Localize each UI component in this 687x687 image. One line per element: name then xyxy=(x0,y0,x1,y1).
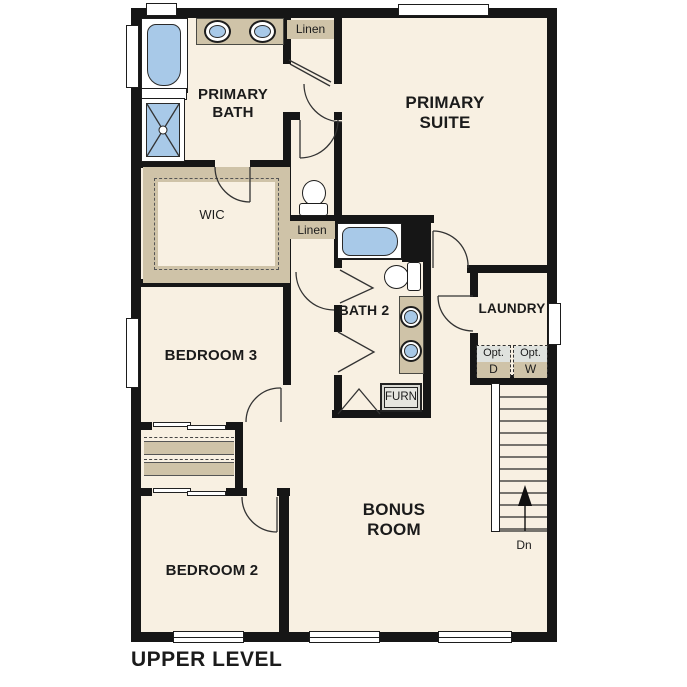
closet-slider-door xyxy=(187,491,226,496)
floor-plan: Linen Linen FURN Opt. D Opt. W PRIMA xyxy=(0,0,687,687)
stairs-down-label: Dn xyxy=(504,538,544,552)
window xyxy=(126,25,139,88)
opt-washer-line2: W xyxy=(514,362,547,376)
window xyxy=(173,631,244,643)
wall xyxy=(283,285,291,385)
opt-washer-box: Opt. W xyxy=(513,345,548,377)
wall xyxy=(467,265,557,273)
bathtub-icon xyxy=(147,24,181,86)
wall xyxy=(402,215,431,262)
wall xyxy=(334,18,342,84)
opt-dryer-line1: Opt. xyxy=(477,347,510,360)
window xyxy=(309,631,380,643)
window xyxy=(126,318,139,388)
plan-title: UPPER LEVEL xyxy=(131,648,431,673)
sink-basin xyxy=(254,25,271,38)
wall xyxy=(334,112,342,120)
toilet-tank xyxy=(299,203,328,216)
sink-basin xyxy=(209,25,226,38)
wic-shelf-edge xyxy=(154,178,279,270)
shower-icon xyxy=(146,103,180,157)
wall xyxy=(141,422,152,430)
wall xyxy=(226,488,247,496)
room-label-primary-bath: PRIMARY BATH xyxy=(178,86,288,121)
closet-shelf xyxy=(144,462,234,476)
opt-washer-line1: Opt. xyxy=(514,347,547,360)
wall xyxy=(277,488,290,496)
bathtub2-icon xyxy=(342,227,398,256)
room-label-laundry: LAUNDRY xyxy=(468,301,556,317)
wall xyxy=(131,8,557,18)
closet-shelf xyxy=(144,441,234,455)
opt-dryer-box: Opt. D xyxy=(476,345,511,377)
wall xyxy=(235,422,243,496)
wall xyxy=(470,271,478,297)
sink-basin xyxy=(404,310,418,324)
linen-upper-label: Linen xyxy=(287,22,334,36)
wall xyxy=(226,422,235,430)
room-label-wic: WIC xyxy=(182,207,242,222)
closet-slider-door xyxy=(153,488,191,493)
closet-slider-door xyxy=(187,425,226,430)
room-label-bedroom-3: BEDROOM 3 xyxy=(141,347,281,365)
room-label-primary-suite: PRIMARY SUITE xyxy=(385,93,505,133)
furnace-label: FURN xyxy=(384,391,418,405)
wall xyxy=(423,262,431,418)
room-label-bath-2: BATH 2 xyxy=(338,302,390,319)
window xyxy=(438,631,512,643)
closet-slider-door xyxy=(153,422,191,427)
room-label-bonus-room: BONUS ROOM xyxy=(344,500,444,540)
closet-rod-dash xyxy=(144,459,234,460)
sink-basin xyxy=(404,344,418,358)
toilet2-tank xyxy=(407,262,421,291)
wall xyxy=(141,488,152,496)
stair-rail xyxy=(491,383,500,532)
linen-lower-label: Linen xyxy=(289,223,335,237)
window xyxy=(398,4,489,16)
room-label-bedroom-2: BEDROOM 2 xyxy=(142,562,282,580)
toilet2-icon xyxy=(384,265,409,289)
opt-dryer-line2: D xyxy=(477,362,510,376)
closet-rod-dash xyxy=(144,437,234,438)
window xyxy=(146,3,177,16)
